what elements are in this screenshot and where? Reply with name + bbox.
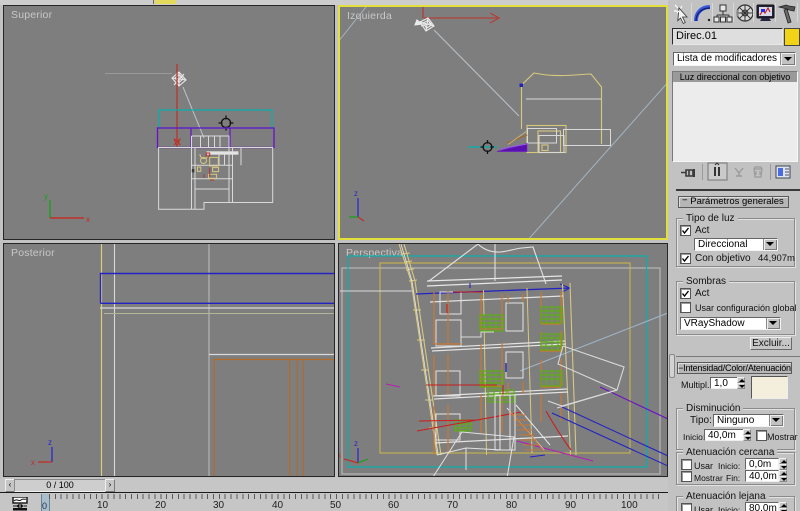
svg-text:x: x xyxy=(339,451,341,460)
svg-text:x: x xyxy=(86,215,90,224)
svg-text:z: z xyxy=(354,439,358,448)
svg-text:z: z xyxy=(354,189,358,198)
svg-text:x: x xyxy=(31,458,35,467)
svg-text:y: y xyxy=(44,192,48,201)
svg-text:z: z xyxy=(48,438,52,447)
